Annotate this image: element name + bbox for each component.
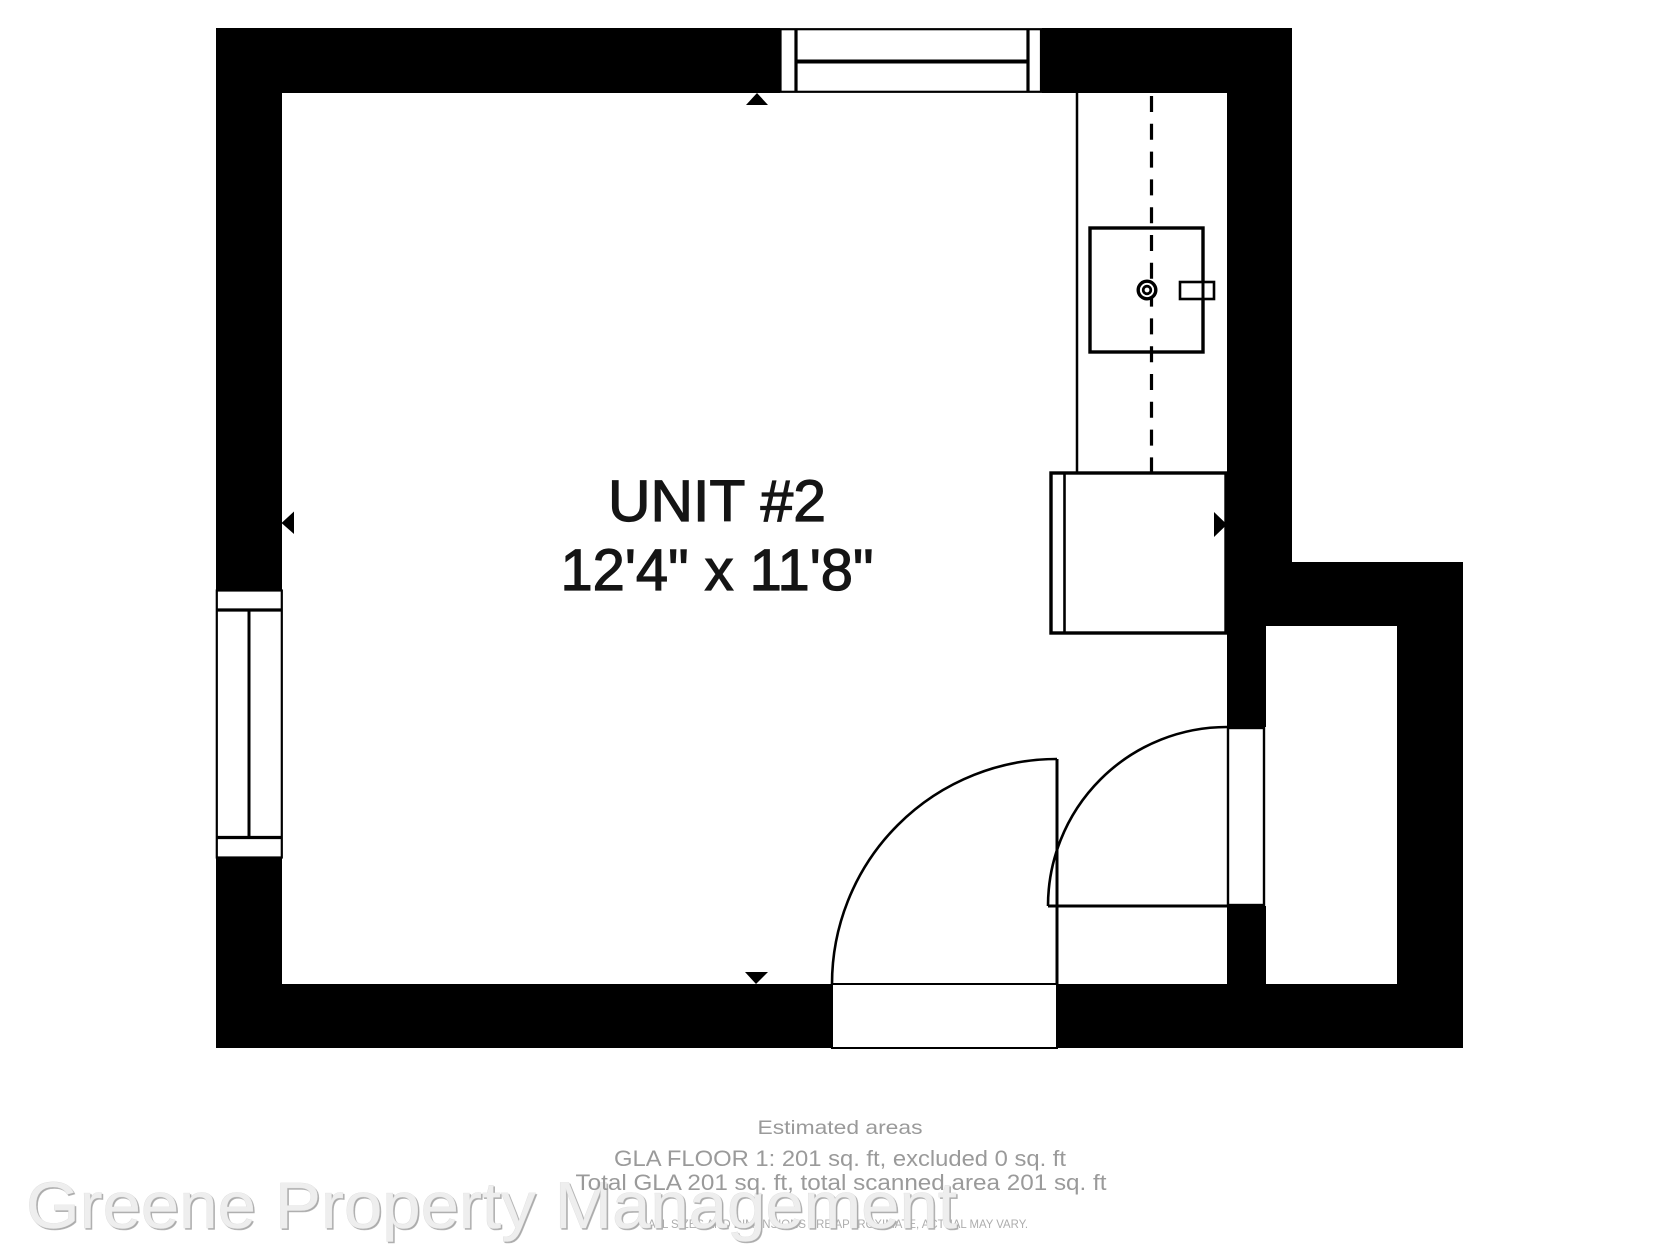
svg-text:Estimated areas: Estimated areas (758, 1117, 923, 1139)
svg-text:GLA FLOOR 1: 201 sq. ft, exclu: GLA FLOOR 1: 201 sq. ft, excluded 0 sq. … (614, 1146, 1066, 1171)
svg-text:12'4" x 11'8": 12'4" x 11'8" (561, 538, 874, 603)
svg-text:UNIT #2: UNIT #2 (608, 469, 826, 534)
svg-text:Total GLA 201 sq. ft, total sc: Total GLA 201 sq. ft, total scanned area… (576, 1170, 1107, 1195)
